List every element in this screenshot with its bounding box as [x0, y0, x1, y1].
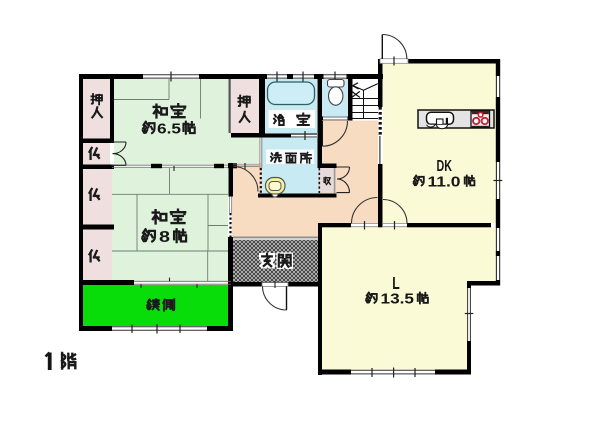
svg-text:6.5: 6.5 — [157, 121, 181, 138]
svg-text:DK: DK — [437, 158, 453, 175]
svg-text:13.5: 13.5 — [381, 291, 415, 308]
svg-text:11.0: 11.0 — [428, 173, 461, 190]
svg-text:8: 8 — [159, 229, 170, 246]
